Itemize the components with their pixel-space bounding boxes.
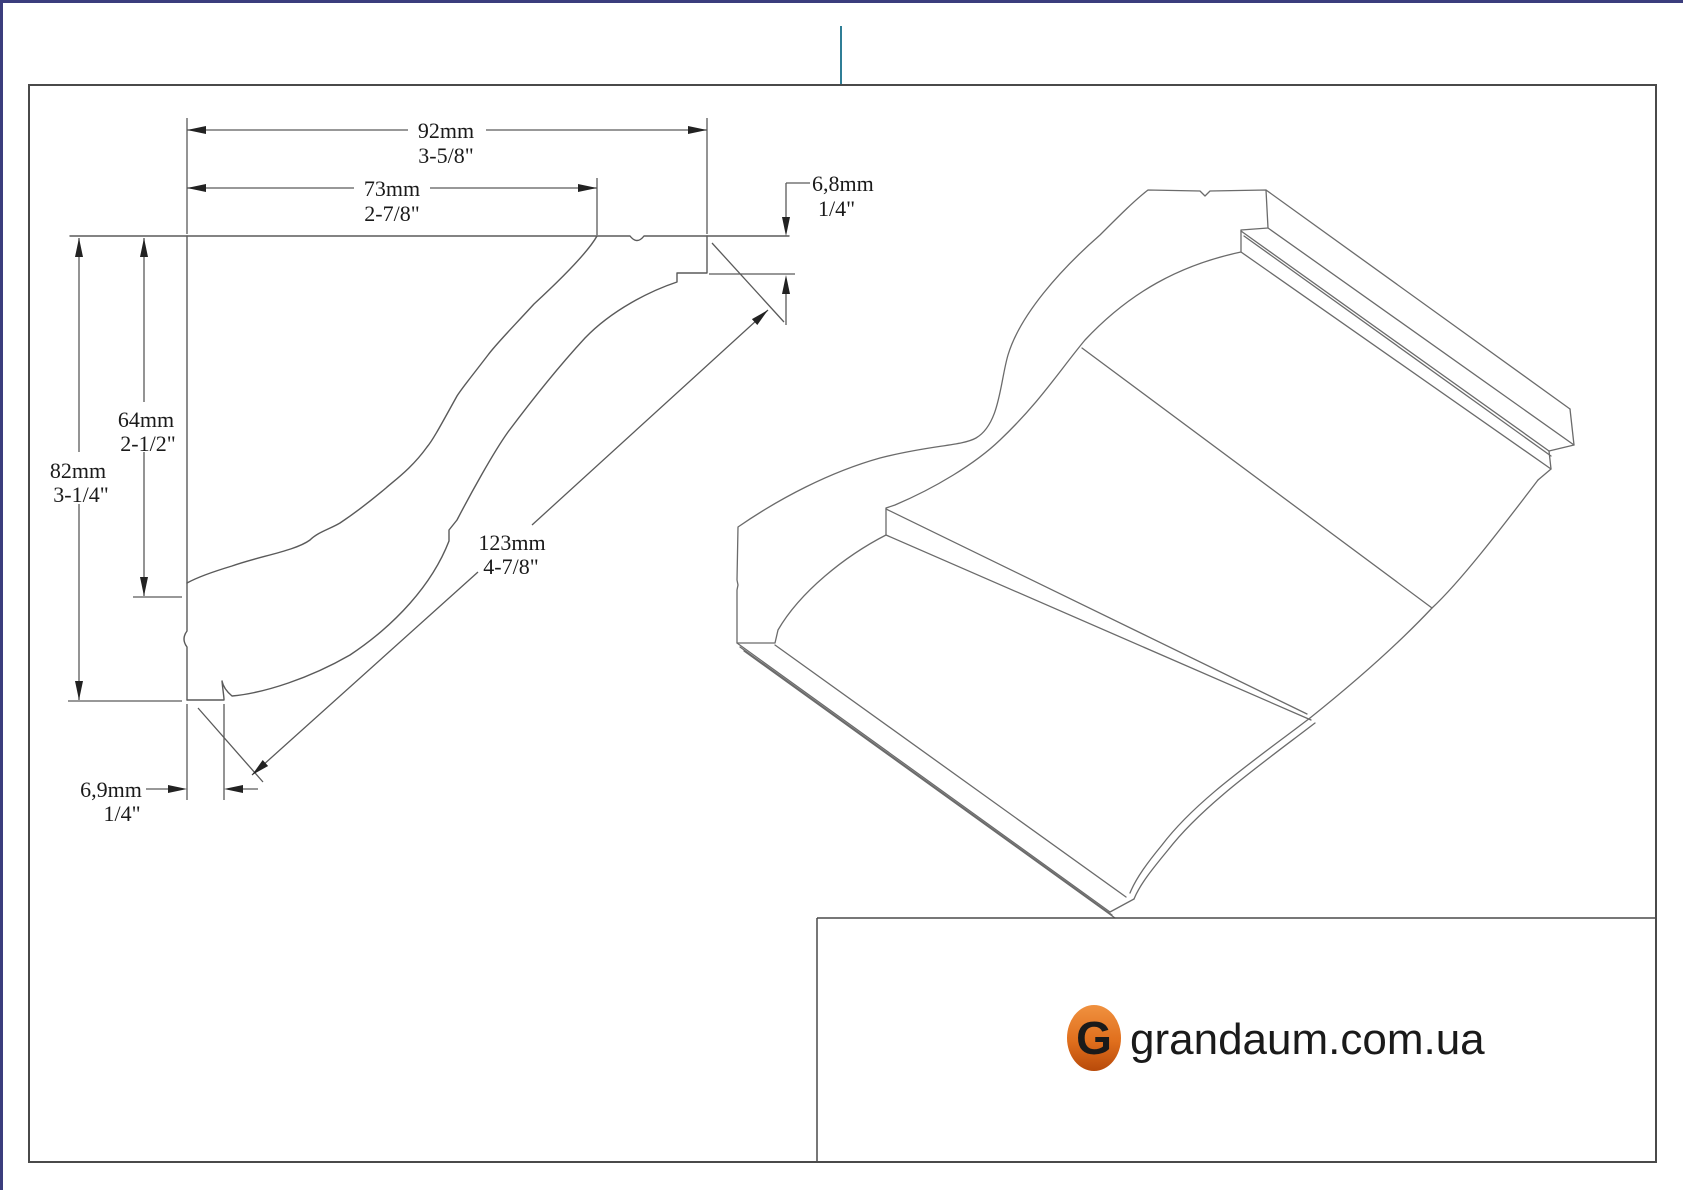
top-accent-border — [0, 0, 1683, 3]
dim-123-mm: 123mm — [478, 530, 545, 555]
drawing-border-box — [29, 85, 1656, 1162]
dim-92-mm: 92mm — [418, 118, 474, 143]
dim-64-inch: 2-1/2" — [120, 431, 175, 456]
dim-69-inch: 1/4" — [103, 801, 140, 826]
dim-64-mm: 64mm — [118, 407, 174, 432]
molding-spec-sheet: 92mm 3-5/8" 73mm 2-7/8" 64mm 2-1/2" 82mm… — [0, 0, 1683, 1190]
dim-68-inch: 1/4" — [818, 196, 855, 221]
dim-123-inch: 4-7/8" — [483, 554, 538, 579]
dim-68-mm: 6,8mm — [812, 171, 874, 196]
left-accent-border — [0, 0, 3, 1190]
logo-site-text: grandaum.com.ua — [1130, 1015, 1485, 1064]
dim-69-mm: 6,9mm — [80, 777, 142, 802]
dim-82-inch: 3-1/4" — [53, 482, 108, 507]
dim-73-inch: 2-7/8" — [364, 201, 419, 226]
dim-92-inch: 3-5/8" — [418, 143, 473, 168]
logo-badge-letter: G — [1076, 1012, 1112, 1064]
dim-73-mm: 73mm — [364, 176, 420, 201]
dim-82-mm: 82mm — [50, 458, 106, 483]
